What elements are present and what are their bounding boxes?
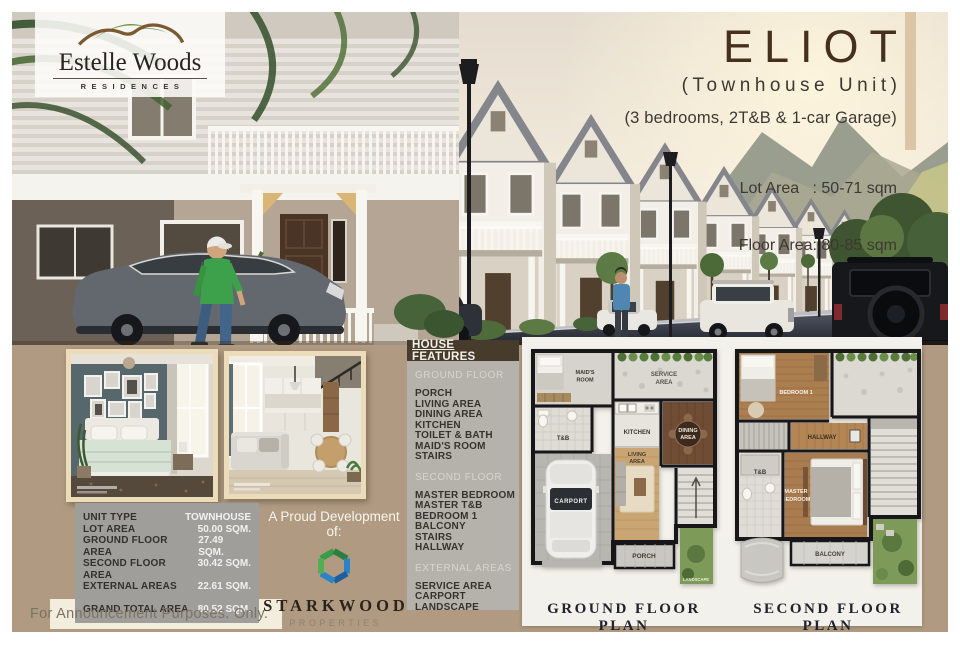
floor-area: Floor Area: 80-85 sqm [624,236,897,255]
svg-text:SERVICE: SERVICE [651,372,677,378]
plan-landscape: LANDSCAPE [680,528,713,584]
feature-item: HALLWAY [415,543,519,554]
flyer-page: Estelle Woods RESIDENCES ELIOT (Townhous… [0,0,960,648]
table-row: EXTERNAL AREAS22.61 SQM. [83,581,251,593]
svg-text:BEDROOM 1: BEDROOM 1 [779,390,812,396]
starkwood-logo-icon [310,546,358,588]
plan-plants [618,353,713,362]
table-row: GROUND FLOOR AREA27.49 SQM. [83,535,251,558]
svg-text:ROOM: ROOM [576,378,594,384]
plan-room-master: MASTER BEDROOM [782,453,867,537]
feature-item: CARPORT [415,592,519,603]
unit-title-block: ELIOT (Townhouse Unit) (3 bedrooms, 2T&B… [624,26,897,293]
features-section-title: EXTERNAL AREAS [415,563,519,574]
brand-subtitle: RESIDENCES [76,82,185,91]
table-row: SECOND FLOOR AREA30.42 SQM. [83,558,251,581]
svg-text:MASTER: MASTER [784,489,807,495]
plan-room-service: SERVICE AREA [615,353,713,399]
developer-type: PROPERTIES [260,618,412,628]
plan-stairs [871,419,917,515]
interior-photo-living [224,351,366,499]
svg-text:CARPORT: CARPORT [554,499,587,505]
feature-item: LANDSCAPE [415,603,519,614]
brand-divider [53,78,207,79]
photo-caption-mark [234,483,270,486]
plan-closet [739,423,787,449]
lot-area: Lot Area : 50-71 sqm [624,179,897,198]
svg-text:PORCH: PORCH [632,553,656,560]
svg-text:AREA: AREA [655,380,673,386]
svg-text:LANDSCAPE: LANDSCAPE [683,577,709,582]
features-section-title: SECOND FLOOR [415,472,519,483]
svg-text:KITCHEN: KITCHEN [624,430,651,436]
plan-stairs [678,468,713,524]
plan-room-living: LIVING AREA [615,448,659,540]
brand-name: Estelle Woods [59,50,202,75]
svg-text:LIVING: LIVING [628,452,646,458]
living-area-render [229,356,361,494]
svg-text:MAID'S: MAID'S [575,370,594,376]
plan-room-dining: DINING AREA [663,402,713,464]
feature-item: DINING AREA [415,410,519,421]
table-row: LOT AREA50.00 SQM. [83,524,251,536]
plan-room-carport: CARPORT [535,454,611,561]
plan-room-master-tb: T&B [739,453,781,537]
table-row: UNIT TYPETOWNHOUSE [83,512,251,524]
svg-text:T&B: T&B [557,436,570,442]
svg-text:BEDROOM: BEDROOM [782,497,811,503]
interior-photo-bedroom [66,349,218,502]
feature-item: STAIRS [415,452,519,463]
unit-areas: Lot Area : 50-71 sqm Floor Area: 80-85 s… [624,141,897,293]
plan-room-tb: T&B [535,408,592,452]
svg-text:BALCONY: BALCONY [815,552,845,558]
developer-block: A Proud Development of: STARKWOOD PROPER… [260,509,408,628]
svg-text:HALLWAY: HALLWAY [808,435,837,441]
house-features-panel: GROUND FLOOR PORCH LIVING AREA DINING AR… [407,361,519,610]
feature-item: BALCONY [415,522,519,533]
disclaimer-note: For Announcement Purposes. Only. [30,606,268,622]
unit-type: (Townhouse Unit) [624,75,901,97]
svg-text:AREA: AREA [680,435,696,441]
plan-landscape [873,519,917,584]
svg-text:DINING: DINING [678,428,697,434]
ground-floor-plan: MAID'S ROOM SERVICE AREA T&B [530,346,718,596]
house-features-header: HOUSE FEATURES [407,340,519,361]
ground-floor-plan-label: GROUND FLOOR PLAN [530,601,718,635]
plan-room-balcony: BALCONY [791,541,869,565]
svg-text:AREA: AREA [629,459,645,465]
plan-room-bedroom1: BEDROOM 1 [739,353,829,419]
features-section-title: GROUND FLOOR [415,370,519,381]
unit-description: (3 bedrooms, 2T&B & 1-car Garage) [624,109,897,128]
feature-item: PORCH [415,389,519,400]
plan-carport-roof [741,538,783,583]
developer-name: STARKWOOD [260,596,412,616]
svg-text:T&B: T&B [754,470,767,476]
plan-room-hallway: HALLWAY [791,423,867,449]
estelle-woods-leaf-icon [70,18,190,50]
second-floor-plan-label: SECOND FLOOR PLAN [734,601,922,635]
bedroom-render [71,354,213,497]
unit-name: ELIOT [624,26,908,68]
unit-specs-table: UNIT TYPETOWNHOUSE LOT AREA50.00 SQM. GR… [75,503,259,623]
brand-logo-card: Estelle Woods RESIDENCES [35,12,225,97]
feature-item: TOILET & BATH [415,431,519,442]
plan-room-kitchen: KITCHEN [615,402,659,446]
second-floor-plan: BEDROOM 1 HALLWAY [734,346,922,596]
plan-room-porch: PORCH [615,544,674,568]
developer-caption: A Proud Development of: [260,509,408,539]
plan-roofdeck [834,353,918,416]
photo-caption-mark [77,486,117,489]
plan-room-maids: MAID'S ROOM [535,353,611,404]
feature-item: MASTER T&B [415,501,519,512]
